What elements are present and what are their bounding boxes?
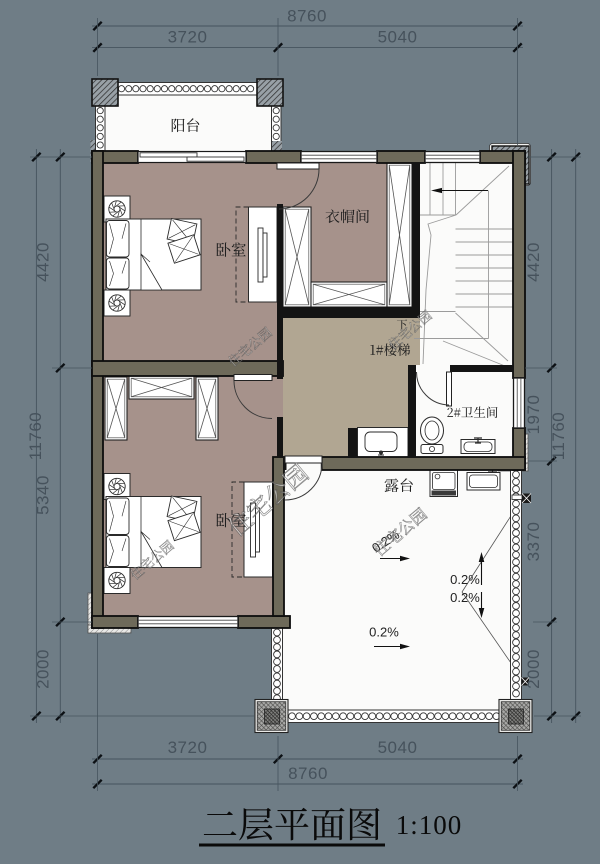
svg-text:3370: 3370: [524, 522, 543, 562]
svg-text:2000: 2000: [34, 649, 53, 689]
svg-text:1:100: 1:100: [396, 810, 463, 840]
svg-text:8760: 8760: [288, 764, 328, 783]
svg-text:3720: 3720: [168, 28, 208, 47]
svg-text:5040: 5040: [378, 28, 418, 47]
svg-text:3720: 3720: [168, 738, 208, 757]
svg-text:5340: 5340: [34, 475, 53, 515]
svg-text:0.2%: 0.2%: [450, 590, 480, 605]
svg-text:11760: 11760: [26, 412, 45, 461]
svg-text:2000: 2000: [524, 649, 543, 689]
svg-text:11760: 11760: [549, 412, 568, 461]
svg-text:5040: 5040: [378, 738, 418, 757]
svg-text:0.2%: 0.2%: [369, 625, 399, 640]
svg-text:1970: 1970: [524, 395, 543, 435]
svg-text:4420: 4420: [34, 242, 53, 282]
svg-text:0.2%: 0.2%: [450, 572, 480, 587]
svg-text:8760: 8760: [287, 7, 327, 26]
svg-text:4420: 4420: [524, 242, 543, 282]
